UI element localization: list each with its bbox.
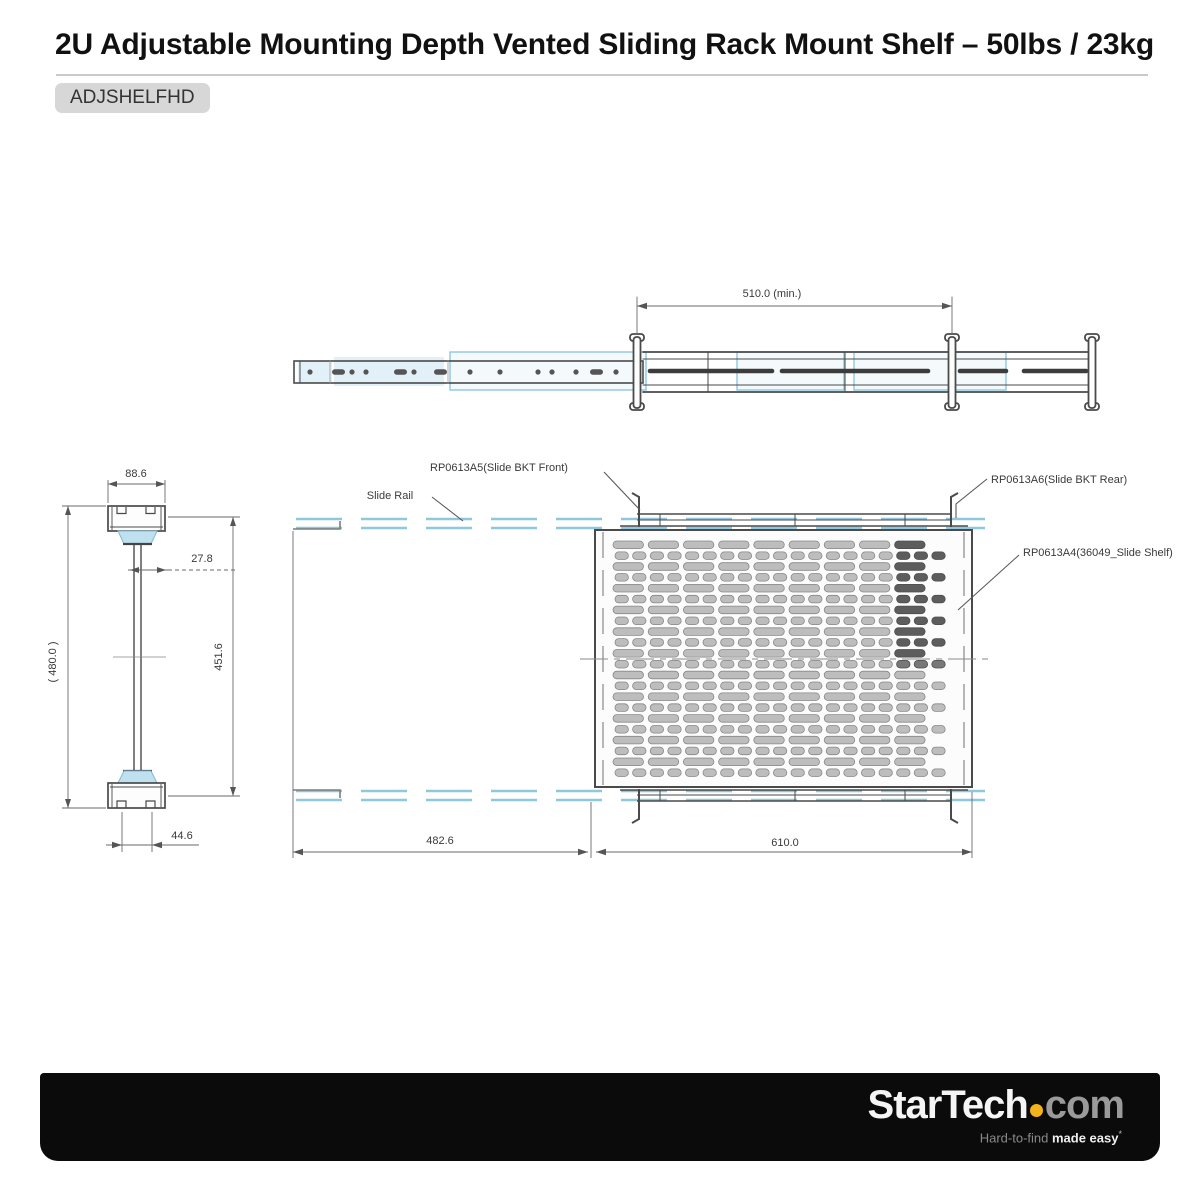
cross-section-joint-bottom	[118, 771, 157, 783]
brand-logo: StarTechcom	[868, 1085, 1124, 1125]
dim-rail-length-text: 482.6	[426, 835, 454, 847]
label-bkt-front: RP0613A5(Slide BKT Front)	[430, 462, 568, 474]
cross-section-joint-top	[118, 531, 157, 544]
shelf-plan-view: 482.6 610.0	[293, 493, 992, 858]
brand-name: StarTech	[868, 1083, 1028, 1127]
cross-section-stem	[113, 544, 166, 771]
label-slide-rail: Slide Rail	[367, 490, 413, 502]
brand-dot-icon	[1030, 1104, 1043, 1117]
dim-foot-width-text: 44.6	[171, 830, 192, 842]
dim-front-width	[108, 480, 165, 503]
tagline-mark: *	[1118, 1129, 1122, 1139]
label-shelf: RP0613A4(36049_Slide Shelf)	[1023, 547, 1173, 559]
product-diagram-page: 2U Adjustable Mounting Depth Vented Slid…	[0, 0, 1200, 1200]
brand-domain: com	[1045, 1083, 1124, 1127]
brand-tagline: Hard-to-find made easy*	[980, 1129, 1122, 1145]
dim-front-width-text: 88.6	[125, 468, 146, 480]
footer-bar: StarTechcom Hard-to-find made easy*	[40, 1073, 1160, 1161]
dim-stem-offset-text: 27.8	[191, 553, 212, 565]
dim-overall-height-text: ( 480.0 )	[47, 642, 59, 683]
tagline-light: Hard-to-find	[980, 1130, 1049, 1145]
shelf-cross-section: 88.6 27.8 ( 480.0 )	[47, 468, 240, 852]
label-bkt-rear: RP0613A6(Slide BKT Rear)	[991, 474, 1127, 486]
dim-stem-offset	[128, 567, 236, 573]
dim-rail-min-text: 510.0 (min.)	[743, 288, 802, 300]
dim-overall-height	[62, 506, 106, 808]
rail-side-view: 510.0 (min.)	[294, 288, 1099, 410]
dim-inner-height-text: 451.6	[213, 643, 225, 671]
dim-rail-min	[637, 297, 952, 334]
technical-drawing: 510.0 (min.)	[0, 0, 1200, 1200]
tagline-bold: made easy	[1052, 1130, 1119, 1145]
dim-shelf-width-text: 610.0	[771, 837, 799, 849]
